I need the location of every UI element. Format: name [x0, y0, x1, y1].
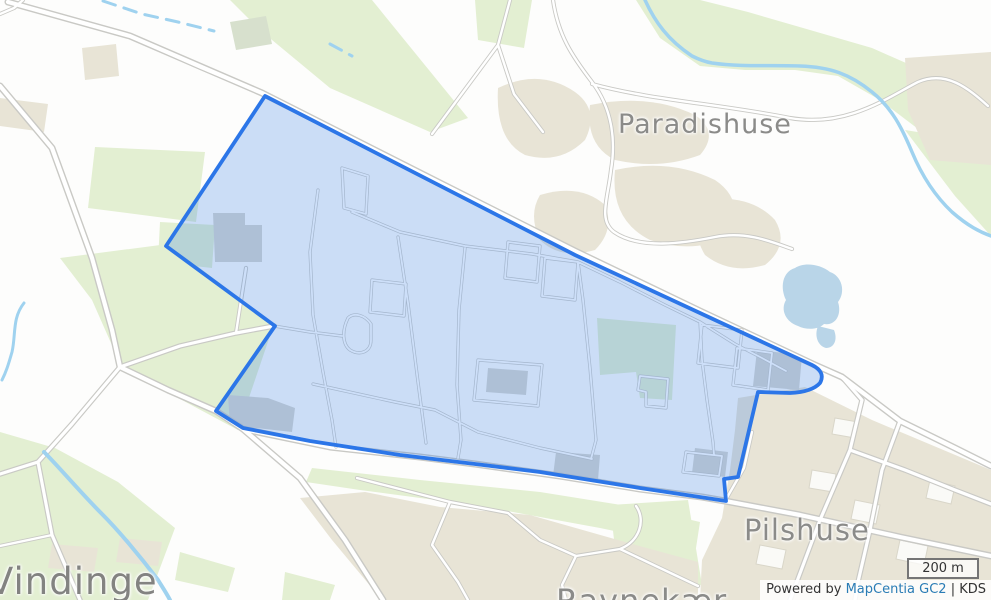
- map-canvas[interactable]: [0, 0, 991, 600]
- map-viewport[interactable]: Paradishuse Pilshuse Vindinge Ravnekær 2…: [0, 0, 991, 600]
- attribution-prefix: Powered by: [766, 582, 845, 597]
- attribution-suffix: | KDS: [947, 582, 986, 597]
- scale-bar-label: 200 m: [922, 561, 964, 576]
- attribution-link[interactable]: MapCentia GC2: [846, 582, 947, 597]
- attribution-bar: Powered by MapCentia GC2 | KDS: [760, 580, 991, 600]
- scale-bar: 200 m: [907, 558, 979, 579]
- selected-area-polygon[interactable]: [166, 96, 822, 501]
- pond: [783, 265, 842, 348]
